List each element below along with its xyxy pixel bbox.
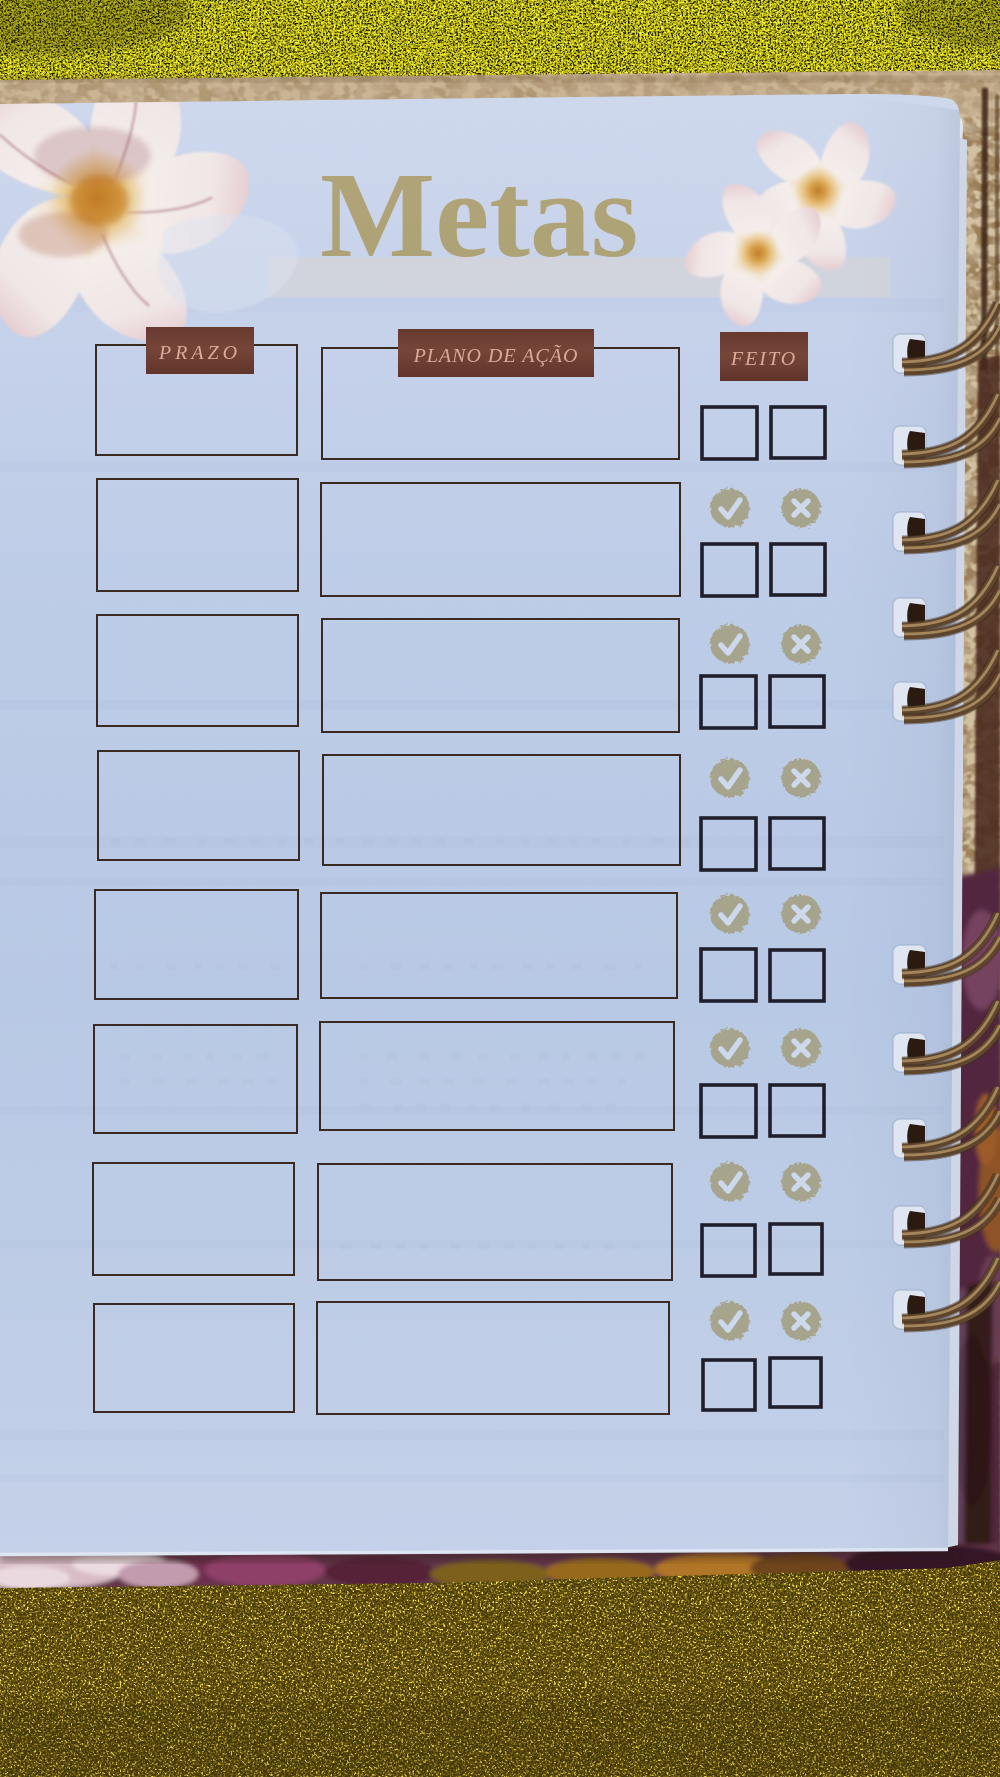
svg-text:PLANO DE AÇÃO: PLANO DE AÇÃO	[413, 343, 579, 367]
svg-text:Metas: Metas	[320, 148, 638, 283]
svg-text:PRAZO: PRAZO	[158, 342, 241, 364]
svg-text:FEITO: FEITO	[730, 348, 797, 370]
